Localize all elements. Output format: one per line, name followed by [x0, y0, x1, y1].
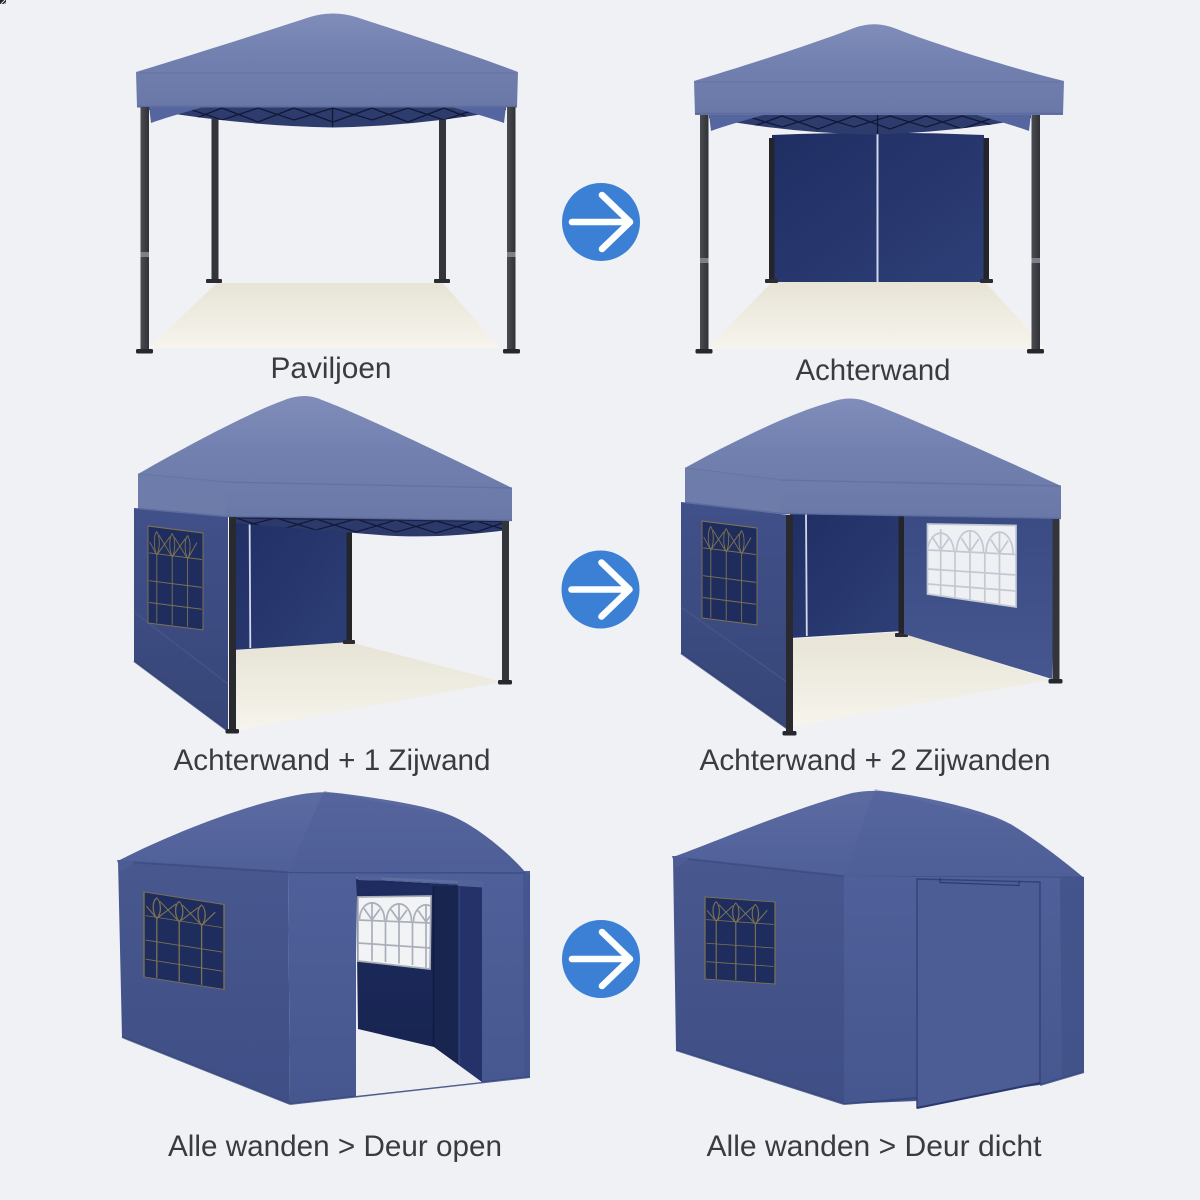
- svg-text:Paviljoen: Paviljoen: [271, 352, 392, 385]
- svg-text:Achterwand + 1 Zijwand: Achterwand + 1 Zijwand: [174, 744, 491, 777]
- svg-text:Achterwand + 2 Zijwanden: Achterwand + 2 Zijwanden: [700, 744, 1051, 777]
- svg-text:Alle wanden > Deur open: Alle wanden > Deur open: [168, 1130, 502, 1163]
- svg-text:Alle wanden > Deur dicht: Alle wanden > Deur dicht: [707, 1130, 1043, 1163]
- svg-text:Achterwand: Achterwand: [796, 354, 951, 387]
